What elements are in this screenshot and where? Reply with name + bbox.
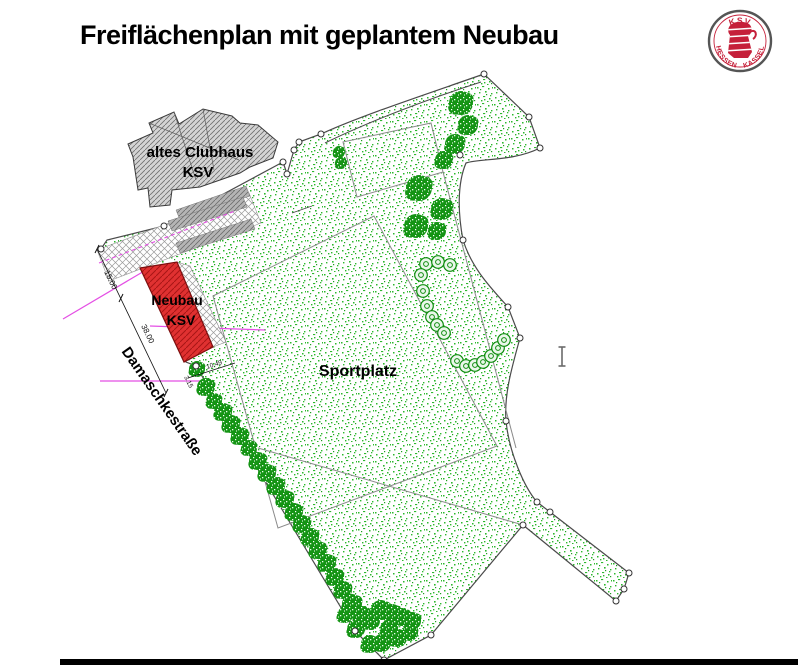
tree-lobe [230,434,241,445]
slide-page: Freiflächenplan mit geplantem Neubau [0,0,800,668]
tree-lobe [284,510,295,521]
boundary-vertex [318,131,324,137]
tree-lobe [310,529,320,539]
clubhaus-label-line2: KSV [183,164,214,181]
tree-lobe [325,575,336,586]
boundary-vertex [520,522,526,528]
tree-lobe [333,150,340,157]
neubau-label-line2: KSV [167,312,196,328]
tree-lobe [317,561,328,572]
boundary-vertex [457,152,463,158]
tree-lobe [292,522,303,533]
tree-lobe [257,471,268,482]
boundary-vertex [503,418,509,424]
tree-lobe [221,422,232,433]
circle-tree [432,256,445,269]
text-cursor [559,347,566,366]
tree-lobe [302,516,312,526]
boundary-vertex [428,632,434,638]
boundary-vertex [161,223,167,229]
bottom-border [60,659,798,665]
boundary-vertex [505,304,511,310]
circle-tree [438,327,451,340]
tree-lobe [336,613,346,623]
tree-lobe [448,100,463,115]
tree-lobe [205,399,215,409]
tree-lobe [370,607,382,619]
tree-lobe [318,542,328,552]
boundary-vertex [534,499,540,505]
tree-lobe [327,555,337,565]
boundary-vertex [193,363,199,369]
tree-lobe [444,152,454,162]
tree-lobe [361,619,372,630]
tree-lobe [360,642,371,653]
tree-lobe [275,497,286,508]
clubhaus-label-line1: altes Clubhaus [147,144,254,161]
boundary-vertex [537,145,543,151]
tree-lobe [430,206,444,220]
tree-lobe [372,641,383,652]
tree-lobe [240,428,250,438]
tree-lobe [403,223,418,238]
boundary-vertex [621,586,627,592]
tree-lobe [240,446,250,456]
tree-lobe [437,223,447,233]
tree-lobe [345,608,354,617]
tree-lobe [460,93,473,106]
circle-tree [415,269,428,282]
tree-lobe [266,484,277,495]
tree-lobe [405,184,421,200]
boundary-vertex [626,570,632,576]
tree-lobe [457,122,469,134]
tree-lobe [335,161,342,168]
tree-lobe [249,441,258,450]
tree-lobe [388,636,399,647]
tree-lobe [335,569,345,579]
dim-315: 3.15 [182,375,194,390]
tree-lobe [401,631,411,641]
site-plan: 15.0038.003.1510.49altes ClubhausKSVNeub… [0,0,800,668]
tree-lobe [223,404,233,414]
tree-lobe [294,504,304,514]
tree-lobe [267,465,277,475]
circle-tree [444,259,457,272]
boundary-vertex [517,335,523,341]
ksv-logo: KSV HESSEN KASSEL [704,6,776,76]
tree-lobe [412,613,422,623]
sportplatz-label: Sportplatz [319,363,397,380]
tree-lobe [258,453,268,463]
tree-lobe [308,548,319,559]
tree-lobe [418,177,432,191]
tree-lobe [441,200,453,212]
boundary-vertex [280,159,286,165]
tree-lobe [276,478,286,488]
neubau-label-line1: Neubau [151,292,202,308]
tree-lobe [415,216,428,229]
boundary-vertex [284,171,290,177]
boundary-vertex [296,139,302,145]
boundary-vertex [547,509,553,515]
tree-lobe [352,596,363,607]
boundary-vertex [98,246,104,252]
tree-lobe [427,229,438,240]
tree-lobe [343,582,353,592]
tree-lobe [213,410,224,421]
circle-tree [417,285,430,298]
tree-lobe [206,379,216,389]
tree-lobe [468,117,479,128]
tree-lobe [214,394,223,403]
tree-lobe [231,416,241,426]
boundary-vertex [613,598,619,604]
tree-lobe [382,611,393,622]
boundary-vertex [481,71,487,77]
tree-lobe [300,535,311,546]
tree-lobe [333,588,344,599]
plan-line [119,294,123,302]
tree-lobe [410,626,419,635]
circle-tree [498,334,511,347]
boundary-vertex [352,628,358,634]
boundary-vertex [291,147,297,153]
tree-lobe [434,158,445,169]
tree-lobe [196,385,207,396]
boundary-vertex [526,114,532,120]
tree-lobe [285,491,295,501]
tree-lobe [341,158,348,165]
boundary-vertex [460,237,466,243]
tree-lobe [339,147,346,154]
tree-lobe [455,136,466,147]
tree-lobe [248,459,259,470]
